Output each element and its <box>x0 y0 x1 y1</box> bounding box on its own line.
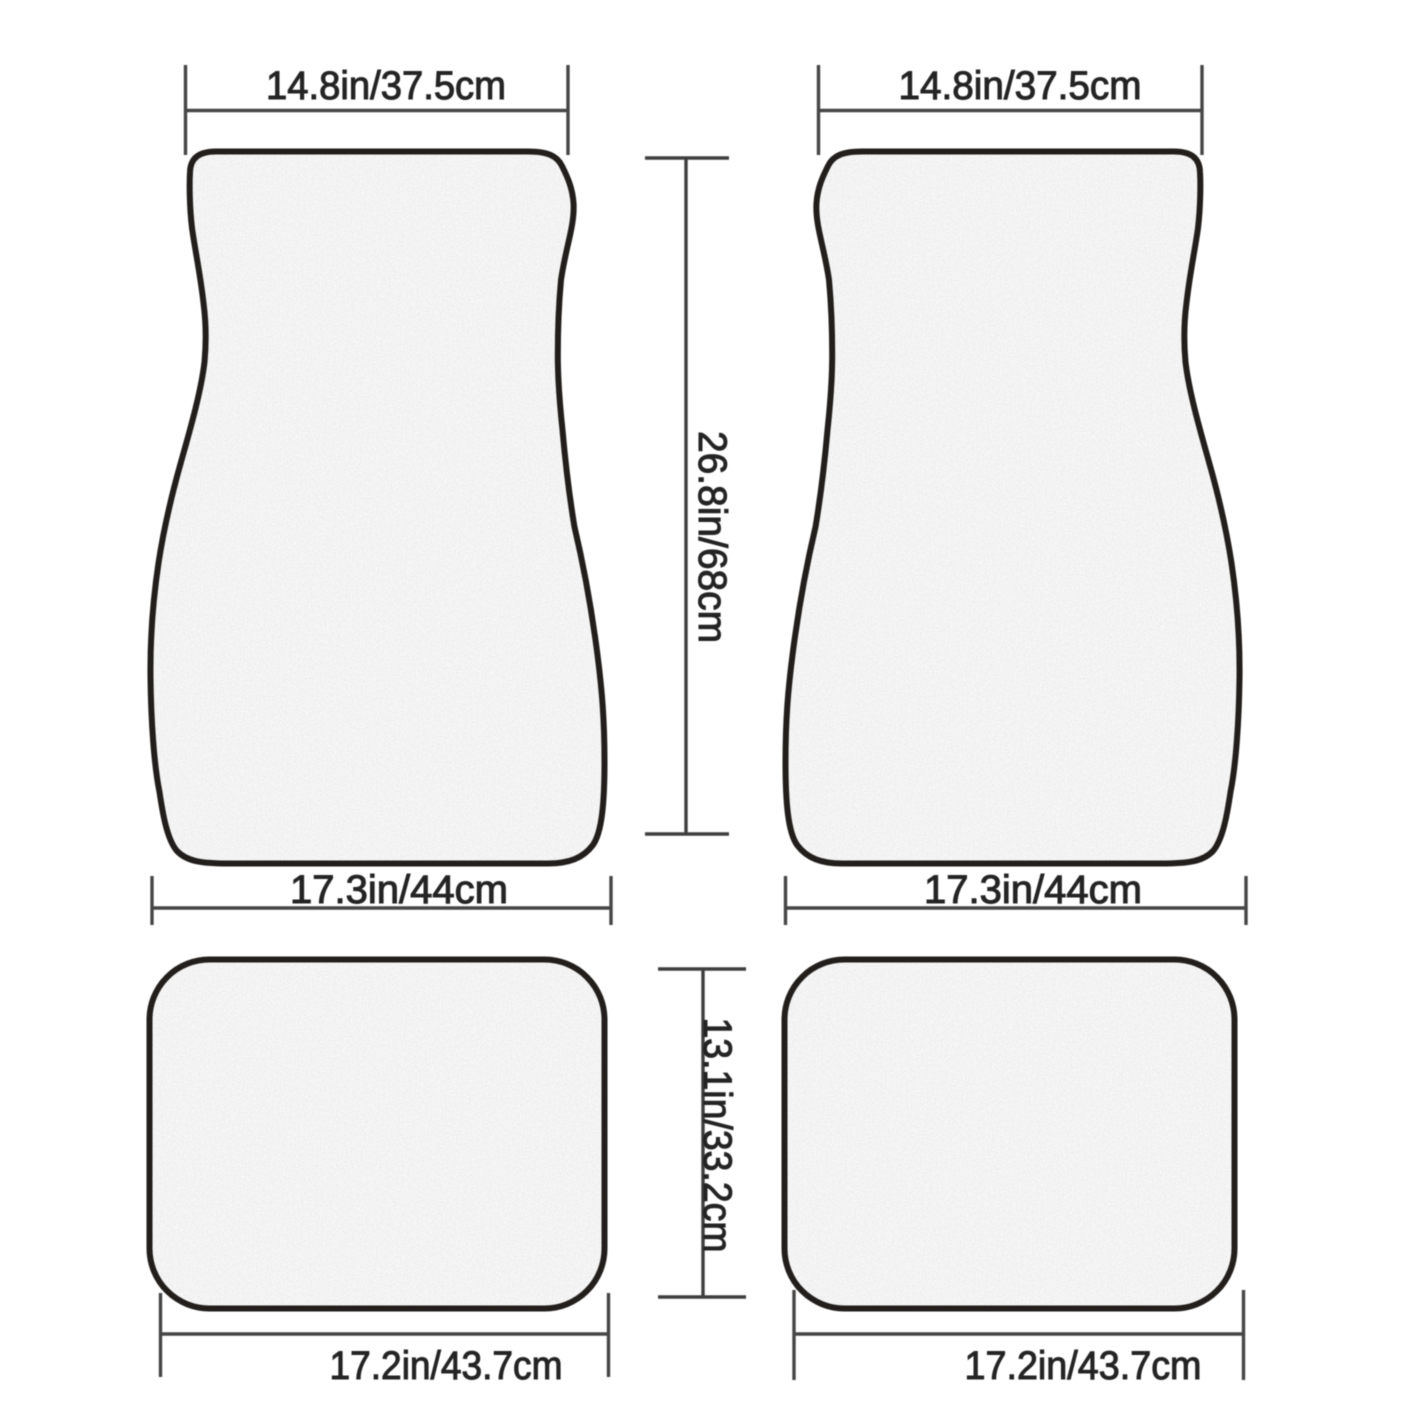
svg-text:14.8in/37.5cm: 14.8in/37.5cm <box>266 64 506 108</box>
svg-text:17.2in/43.7cm: 17.2in/43.7cm <box>965 1344 1202 1388</box>
svg-text:17.2in/43.7cm: 17.2in/43.7cm <box>330 1344 563 1388</box>
svg-text:13.1in/33.2cm: 13.1in/33.2cm <box>695 1018 739 1253</box>
svg-text:17.3in/44cm: 17.3in/44cm <box>924 868 1142 912</box>
svg-text:14.8in/37.5cm: 14.8in/37.5cm <box>899 64 1142 108</box>
svg-text:17.3in/44cm: 17.3in/44cm <box>290 868 508 912</box>
svg-text:26.8in/68cm: 26.8in/68cm <box>690 431 734 643</box>
